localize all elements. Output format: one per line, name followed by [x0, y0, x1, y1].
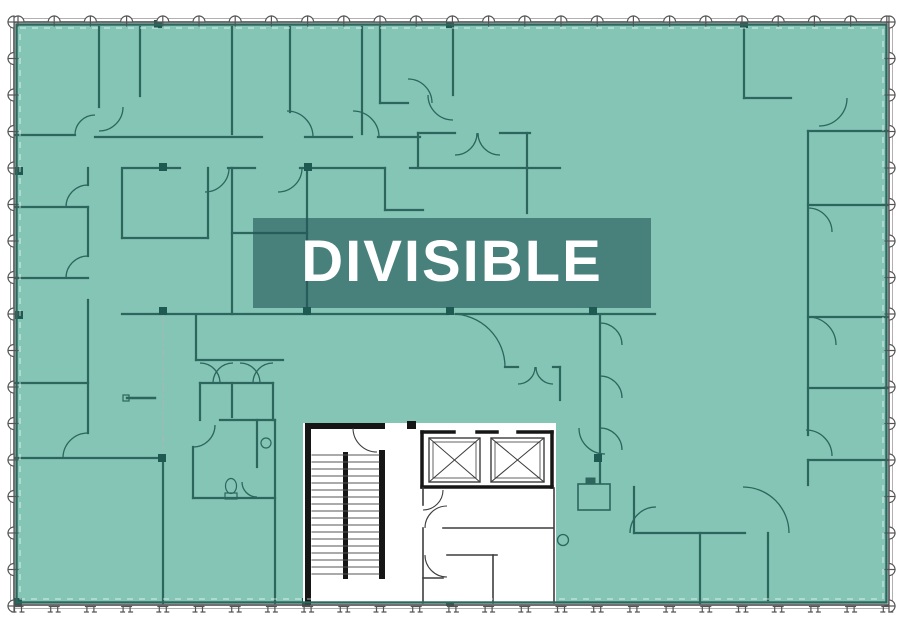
- building-core: [303, 421, 556, 605]
- divisible-label-text: DIVISIBLE: [301, 233, 603, 291]
- floor-plan-drawing: [0, 0, 912, 628]
- divisible-label: DIVISIBLE: [253, 218, 651, 308]
- floor-plan: DIVISIBLE: [0, 0, 912, 628]
